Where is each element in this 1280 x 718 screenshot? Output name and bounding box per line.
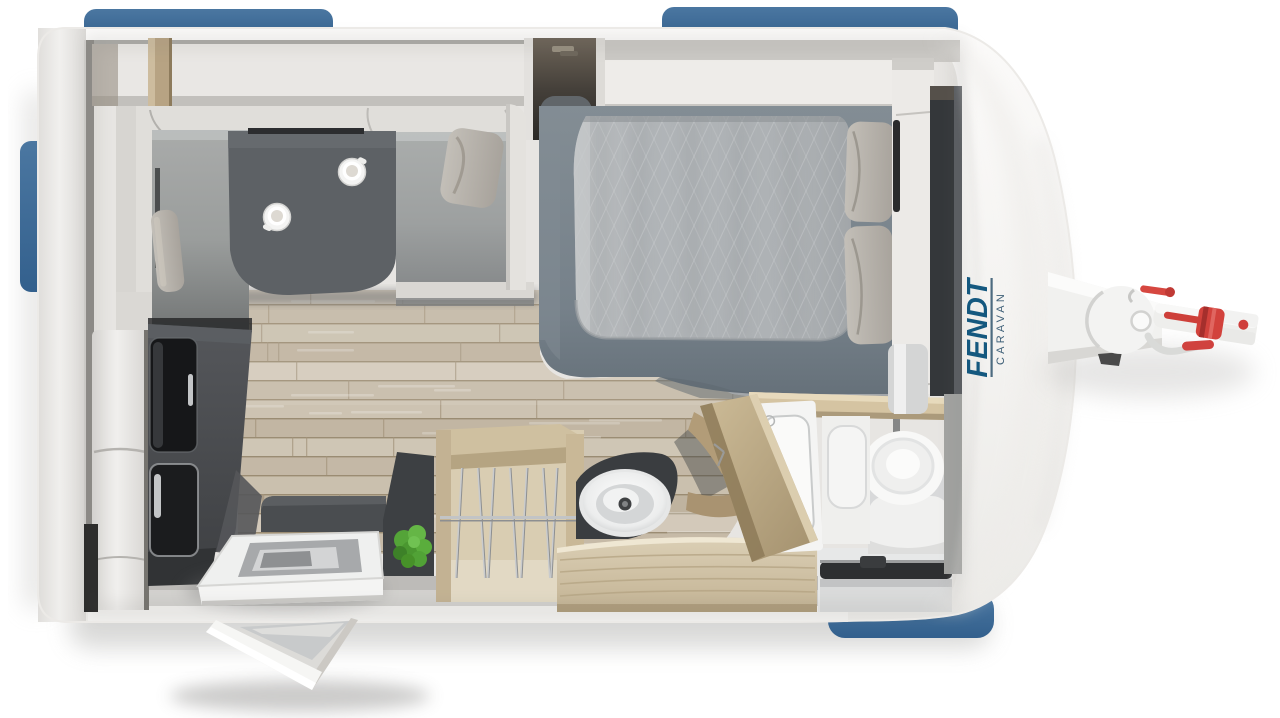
svg-text:CARAVAN: CARAVAN bbox=[995, 291, 1007, 365]
svg-text:FENDT: FENDT bbox=[962, 277, 994, 378]
